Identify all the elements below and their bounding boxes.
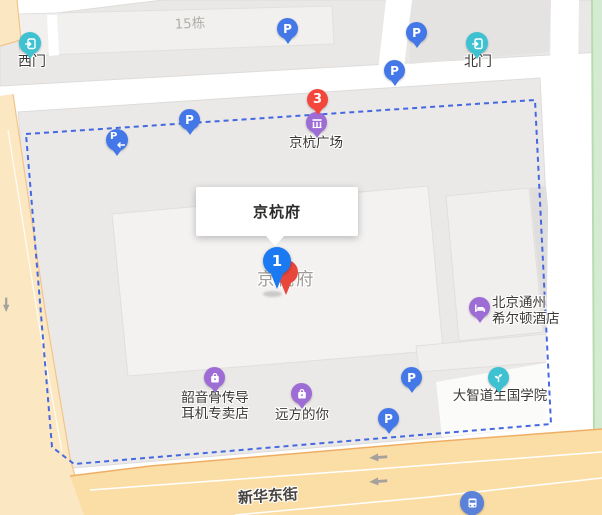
faraway-shop-label: 远方的你 bbox=[275, 408, 329, 424]
parking-marker-5[interactable]: P bbox=[401, 367, 422, 388]
parking-icon: P bbox=[283, 23, 292, 35]
left-arrow-icon bbox=[115, 137, 127, 149]
parking-icon: P bbox=[384, 413, 393, 425]
shopping-bag-icon bbox=[296, 388, 308, 400]
shopping-bag-icon bbox=[209, 372, 221, 384]
parking-marker-1[interactable]: P bbox=[277, 18, 298, 39]
parking-marker-3[interactable]: P bbox=[384, 60, 405, 81]
north-gate-marker[interactable] bbox=[466, 32, 488, 54]
parking-marker-2[interactable]: P bbox=[406, 22, 427, 43]
parking-entrance-marker[interactable]: P bbox=[106, 129, 128, 151]
plaza-label: 京杭广场 bbox=[289, 136, 343, 152]
headphone-store-line1: 韶音骨传导 bbox=[181, 391, 249, 407]
building15-label: 15栋 bbox=[174, 16, 205, 34]
gate-door-icon bbox=[24, 37, 37, 50]
place-callout[interactable]: 京杭府 bbox=[196, 187, 358, 236]
parking-icon: P bbox=[390, 65, 399, 77]
bed-icon bbox=[474, 302, 486, 314]
hotel-label: 北京通州 希尔顿酒店 bbox=[492, 296, 560, 328]
parking-icon: P bbox=[185, 114, 194, 126]
parking-icon: P bbox=[412, 27, 421, 39]
parking-icon: P bbox=[407, 372, 416, 384]
hotel-label-line1: 北京通州 bbox=[492, 296, 560, 312]
hotel-marker[interactable] bbox=[469, 297, 490, 318]
hotel-label-line2: 希尔顿酒店 bbox=[492, 312, 560, 328]
result-number: 3 bbox=[313, 93, 322, 106]
bus-icon bbox=[466, 497, 479, 510]
map-base-layer bbox=[0, 0, 602, 515]
callout-title: 京杭府 bbox=[253, 201, 301, 222]
search-result-3-marker[interactable]: 3 bbox=[307, 89, 328, 110]
storefront-icon bbox=[311, 117, 323, 129]
west-gate-marker[interactable] bbox=[19, 32, 41, 54]
plaza-mall-marker[interactable] bbox=[306, 112, 327, 133]
building-15-gap bbox=[47, 15, 59, 56]
parking-marker-6[interactable]: P bbox=[378, 408, 399, 429]
faraway-shop-marker[interactable] bbox=[291, 383, 312, 404]
result-number: 1 bbox=[272, 252, 282, 270]
sprout-icon bbox=[492, 371, 505, 384]
parking-marker-4[interactable]: P bbox=[179, 109, 200, 130]
headphone-store-line2: 耳机专卖店 bbox=[181, 407, 249, 423]
headphone-store-label: 韶音骨传导 耳机专卖店 bbox=[181, 391, 249, 423]
gate-door-icon bbox=[471, 37, 484, 50]
bus-stop-marker[interactable] bbox=[460, 491, 484, 515]
academy-marker[interactable] bbox=[488, 367, 509, 388]
search-result-1-pin[interactable]: 1 bbox=[263, 247, 291, 275]
map-canvas[interactable]: 15栋 西门 北门 京杭广场 京杭府 北京通州 希尔顿酒店 韶音骨传导 耳机专卖… bbox=[0, 0, 602, 515]
headphone-store-marker[interactable] bbox=[204, 367, 225, 388]
